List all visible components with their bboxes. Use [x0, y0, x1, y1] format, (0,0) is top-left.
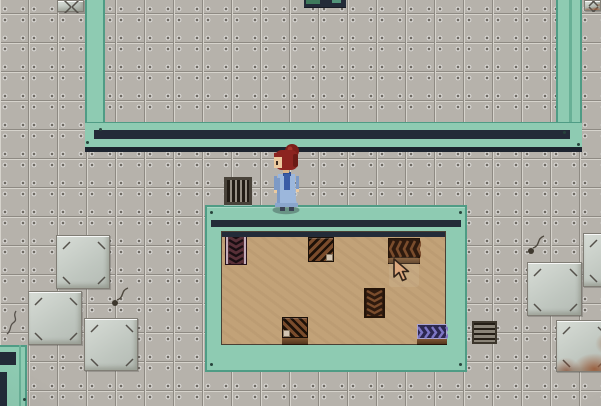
player-character[interactable] [269, 144, 305, 216]
wall-rivet-dot [459, 363, 462, 366]
wall-rivet-dot [86, 141, 89, 144]
plate-corner-screw-marks [57, 236, 111, 290]
conveyor-belt-purple [417, 324, 447, 339]
bottom-left-room-doorway [0, 372, 7, 406]
wall-rivet-dot [459, 211, 462, 214]
rust-stain [557, 321, 601, 371]
floor-plate [57, 0, 84, 12]
rust-stain [585, 1, 600, 10]
floor-plate [556, 320, 601, 372]
arrow-cursor-icon [391, 257, 413, 285]
chevron-pattern [418, 325, 448, 340]
lower-room-groove-stripe [211, 220, 461, 227]
conveyor-belt-vertical [364, 288, 385, 318]
wire-squiggle [522, 234, 548, 260]
vent-grate-vertical-bars [224, 177, 252, 205]
floor-track-vertical [226, 233, 246, 264]
wall-groove-stripe [94, 130, 570, 139]
top-edge-object [304, 0, 346, 8]
floor-plate [28, 291, 82, 345]
wire-squiggle [106, 286, 132, 312]
game-viewport[interactable] [0, 0, 601, 406]
top-edge-object-teal-detail [332, 0, 341, 3]
chevron-pattern [389, 239, 421, 259]
bottom-left-room-groove [0, 352, 16, 365]
mat-base-plinth [417, 339, 447, 345]
mat-corner-notch [326, 254, 333, 261]
plate-corner-screw-marks [528, 263, 583, 317]
lower-room-wall-shadow [222, 232, 445, 237]
floor-plate [527, 262, 582, 316]
wall-wire-detail [522, 234, 548, 260]
chevron-pattern [228, 233, 244, 264]
floor-plate [84, 318, 138, 371]
plate-corner-screw-marks [58, 1, 85, 13]
bottom-left-room-seam [19, 345, 21, 406]
top-edge-object-green-detail [306, 0, 320, 4]
plate-corner-screw-marks [584, 234, 601, 288]
floor-plate [56, 235, 110, 289]
floor-mat-corner [282, 317, 308, 338]
floor-plate [583, 233, 601, 287]
wall-rivet-dot [99, 128, 102, 131]
wall-rivet-dot [210, 211, 213, 214]
conveyor-belt-horizontal [388, 238, 420, 258]
mat-base-plinth [282, 338, 308, 345]
mat-corner-notch [283, 330, 290, 337]
chevron-pattern [366, 290, 383, 316]
wall-base-stripe [85, 147, 582, 152]
plate-corner-screw-marks [29, 292, 83, 346]
tile-crack [4, 310, 30, 336]
plate-corner-screw-marks [85, 319, 139, 372]
upper-room-right-wall-seam [569, 0, 572, 122]
wall-rivet-dot [23, 398, 26, 401]
floor-plate [584, 0, 601, 11]
floor-mat-corner [308, 237, 334, 262]
vent-grate-horizontal-bars [472, 321, 497, 344]
crack-squiggle [4, 310, 30, 336]
wall-rivet-dot [563, 131, 566, 134]
upper-room-left-wall [85, 0, 105, 122]
wall-rivet-dot [577, 143, 580, 146]
wall-wire-detail [106, 286, 132, 312]
mouse-cursor-icon [391, 257, 413, 285]
red-haired-girl-sprite [269, 144, 305, 216]
wall-rivet-dot [210, 363, 213, 366]
